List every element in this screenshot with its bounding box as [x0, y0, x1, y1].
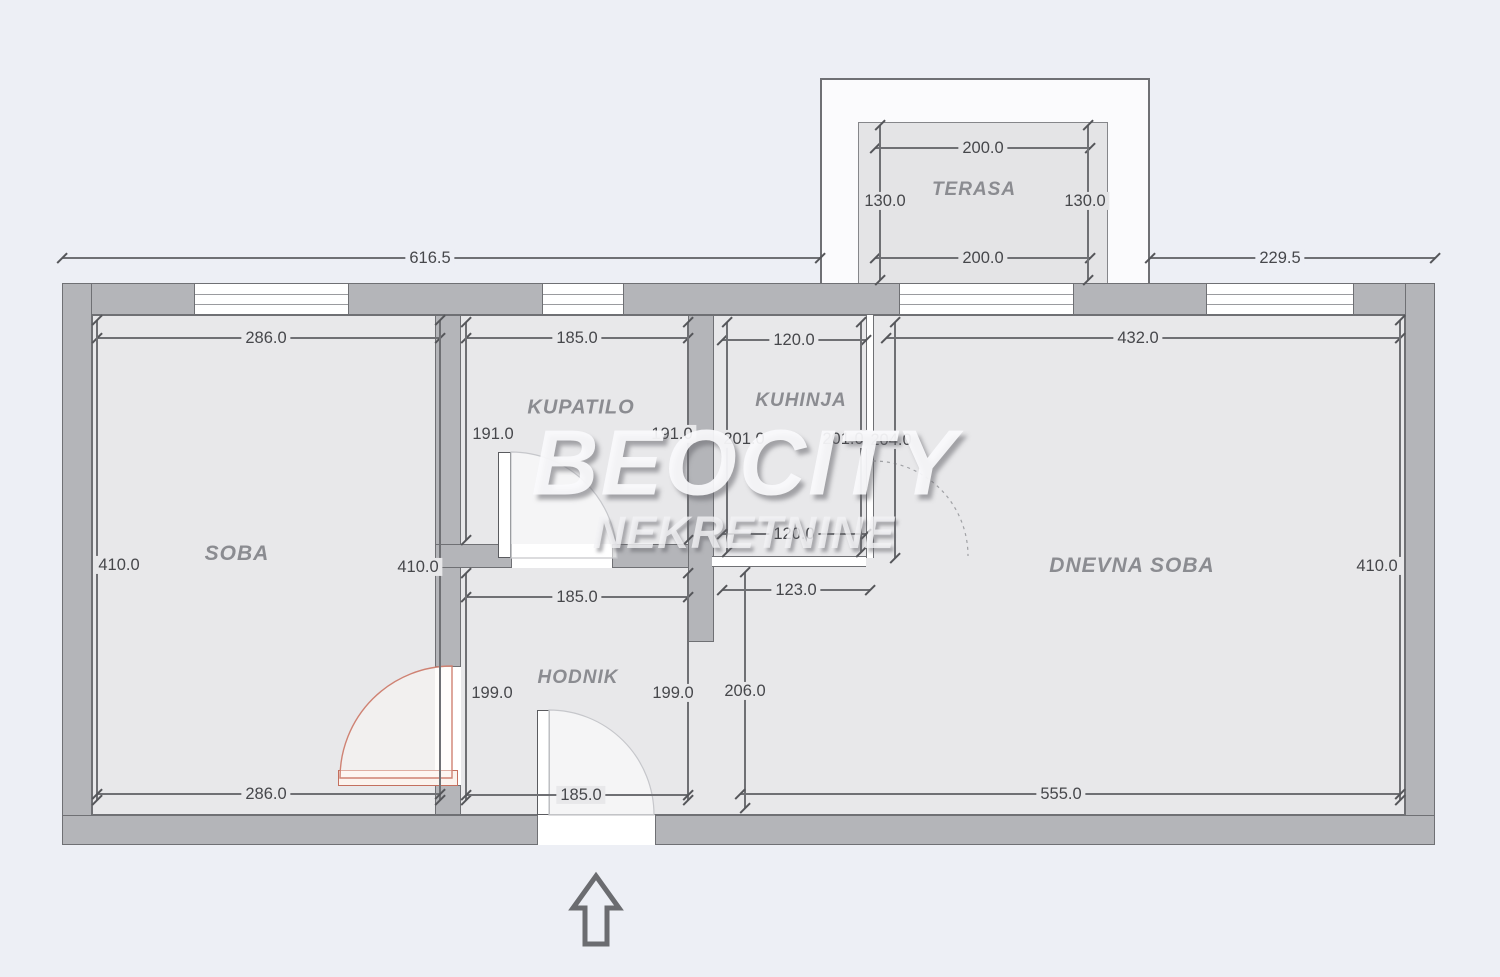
dimension-label: 185.0	[556, 786, 605, 804]
dimension-label: 191.0	[468, 425, 517, 443]
dimension-label: 199.0	[467, 684, 516, 702]
dimension-label: 229.5	[1255, 249, 1304, 267]
dimension-line	[465, 322, 466, 540]
dimension-label: 410.0	[1352, 557, 1401, 575]
dimension-label: 410.0	[393, 558, 442, 576]
entrance-arrow-icon	[573, 876, 619, 944]
floor-plan: 616.5229.5200.0200.0130.0130.0286.0185.0…	[0, 0, 1500, 977]
dimension-label: 185.0	[552, 329, 601, 347]
dimension-label: 206.0	[720, 682, 769, 700]
dimension-label: 200.0	[958, 139, 1007, 157]
dimension-label: 199.0	[648, 684, 697, 702]
dimension-label: 616.5	[405, 249, 454, 267]
room-label-hodnik: HODNIK	[538, 667, 619, 689]
room-label-dnevna-soba: DNEVNA SOBA	[1049, 554, 1214, 578]
room-label-soba: SOBA	[205, 542, 270, 566]
dimension-label: 185.0	[552, 588, 601, 606]
watermark-brand: BEOCITY	[531, 410, 958, 517]
room-label-terasa: TERASA	[932, 179, 1016, 201]
dimension-label: 555.0	[1036, 785, 1085, 803]
dimension-label: 120.0	[769, 331, 818, 349]
dimension-label: 286.0	[241, 785, 290, 803]
watermark-subtitle: NEKRETNINE	[593, 507, 896, 559]
dimension-label: 286.0	[241, 329, 290, 347]
dimension-label: 130.0	[1060, 192, 1109, 210]
dimension-label: 432.0	[1113, 329, 1162, 347]
dimension-label: 130.0	[860, 192, 909, 210]
dimension-label: 200.0	[958, 249, 1007, 267]
dimension-label: 123.0	[771, 581, 820, 599]
room-door-arc	[340, 666, 452, 778]
dimension-label: 410.0	[94, 556, 143, 574]
